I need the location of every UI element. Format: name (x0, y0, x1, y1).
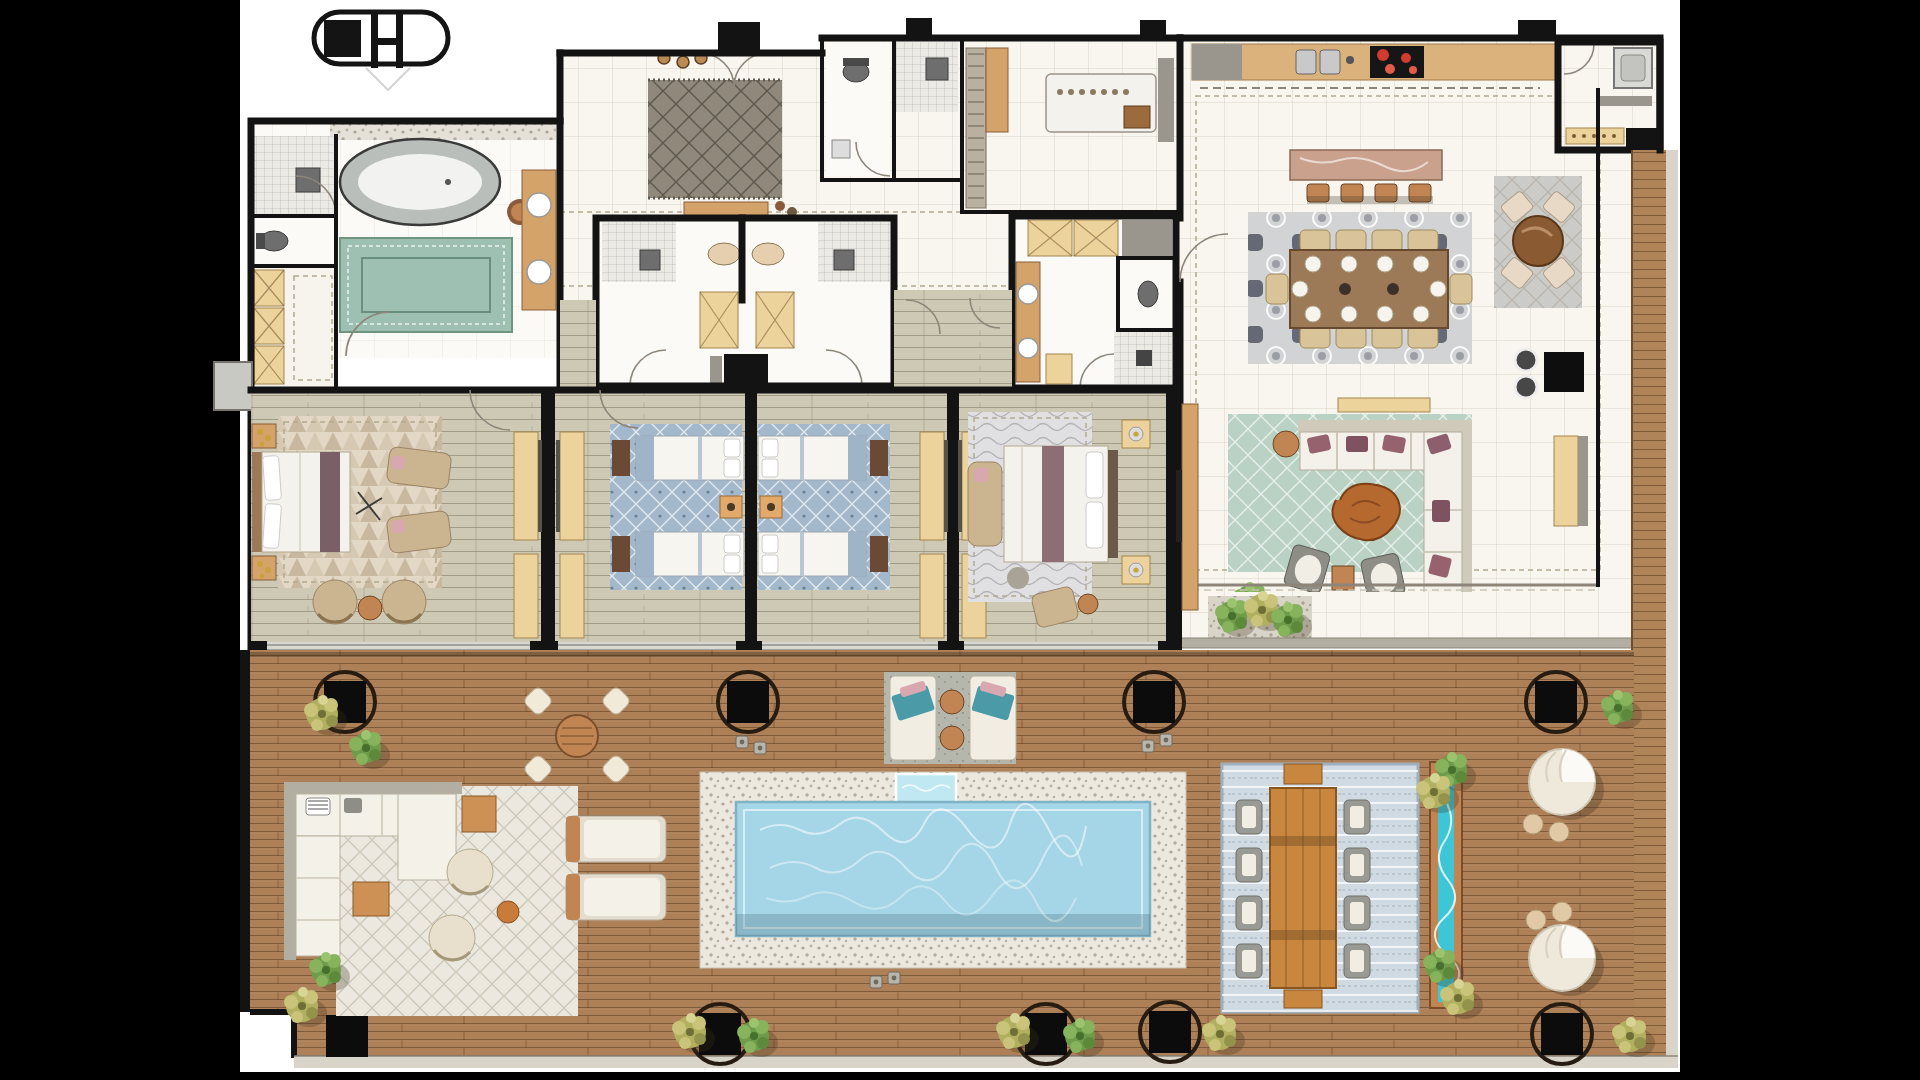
foot-throw (320, 452, 340, 552)
walk-in-closet (252, 266, 336, 388)
side-table (462, 796, 496, 832)
freestanding-bathtub (340, 139, 500, 225)
door-mat (1600, 96, 1652, 106)
mosaic-shower (1114, 330, 1172, 384)
bench (1046, 354, 1072, 384)
se-tiled-terrace (1180, 591, 1632, 648)
pouf (1526, 910, 1546, 930)
side-table (353, 882, 389, 916)
double-vanity (522, 170, 558, 310)
pouf (1552, 902, 1572, 922)
party-wall (947, 390, 959, 648)
ottoman (497, 901, 519, 923)
pebble-band (330, 122, 556, 140)
dotted-bench (1566, 128, 1624, 144)
spa-side-loungers (884, 672, 1016, 764)
east-bench (1554, 436, 1588, 526)
console-decor (775, 201, 785, 211)
twin-bed (636, 436, 744, 480)
basket (1124, 106, 1150, 128)
tv-console (1182, 404, 1198, 610)
spa-inset (896, 774, 956, 804)
round-table (940, 690, 964, 714)
tall-cabinet (1158, 58, 1174, 142)
king-bed (252, 452, 350, 552)
foyer-rug (648, 80, 782, 198)
twin-bed (636, 532, 744, 576)
pool-water (736, 802, 1150, 936)
pouf (1523, 814, 1543, 834)
faucet (1346, 56, 1354, 64)
folding-island (1046, 74, 1156, 132)
south-fascia (294, 1056, 1678, 1068)
cooktop (1370, 46, 1424, 78)
twin-bathrooms-block (596, 218, 894, 386)
twin-bed (758, 436, 866, 480)
sheet-notch (240, 1012, 294, 1072)
column-block (718, 22, 760, 53)
side-table (1078, 594, 1098, 614)
queen-bed (1004, 446, 1118, 562)
bath-rug (340, 238, 512, 332)
east-boardwalk (1632, 150, 1666, 1058)
laundry-counter (986, 48, 1008, 132)
pouf (1007, 567, 1029, 589)
roof-deck (240, 650, 1678, 1072)
tv-panel (1176, 470, 1182, 542)
games-table-corner (1494, 176, 1582, 308)
foot-bench (870, 536, 888, 572)
round-games-table (1513, 216, 1563, 266)
foot-bench (870, 440, 888, 476)
plumbing-chase (724, 354, 768, 386)
kettle (1515, 376, 1537, 398)
party-wall (745, 390, 757, 648)
side-table (1273, 431, 1299, 457)
swimming-pool (700, 772, 1186, 968)
column-block (1518, 20, 1556, 40)
mosaic-shower-right (818, 222, 890, 282)
outdoor-dining (1222, 764, 1418, 1012)
end-bench (1284, 990, 1322, 1008)
floor-plan-canvas (0, 0, 1920, 1080)
west-ledge (214, 362, 252, 410)
shelf-unit (1122, 220, 1172, 258)
terrace-planter (1208, 591, 1312, 641)
vanity-stool (752, 243, 784, 265)
column-block (1140, 20, 1166, 38)
shower-fixture (296, 168, 320, 192)
twin-bedroom-b (758, 424, 890, 590)
double-vanity (1016, 262, 1040, 382)
wc-room (252, 218, 336, 264)
bedroom3-bathroom (1012, 216, 1176, 388)
deck-west-wall (240, 650, 250, 1012)
mosaic-shower-left (602, 222, 676, 282)
vanity-stool (708, 243, 740, 265)
end-bench (1284, 764, 1322, 784)
foot-bench (612, 536, 630, 572)
ne-entry-lobby (1558, 42, 1660, 150)
drinks-table (358, 596, 382, 620)
bed-runner (1042, 446, 1064, 562)
toilet (1138, 281, 1158, 307)
shower-room (252, 136, 336, 216)
party-wall (541, 390, 555, 648)
kettle (1515, 349, 1537, 371)
foot-bench (612, 440, 630, 476)
round-table (940, 726, 964, 750)
east-fascia (1666, 150, 1678, 1058)
sofa-console (1338, 398, 1430, 412)
pouf (1549, 822, 1569, 842)
twin-bed (758, 532, 866, 576)
column-block (906, 18, 932, 38)
dining-area (1248, 212, 1472, 364)
parapet (1180, 638, 1632, 648)
